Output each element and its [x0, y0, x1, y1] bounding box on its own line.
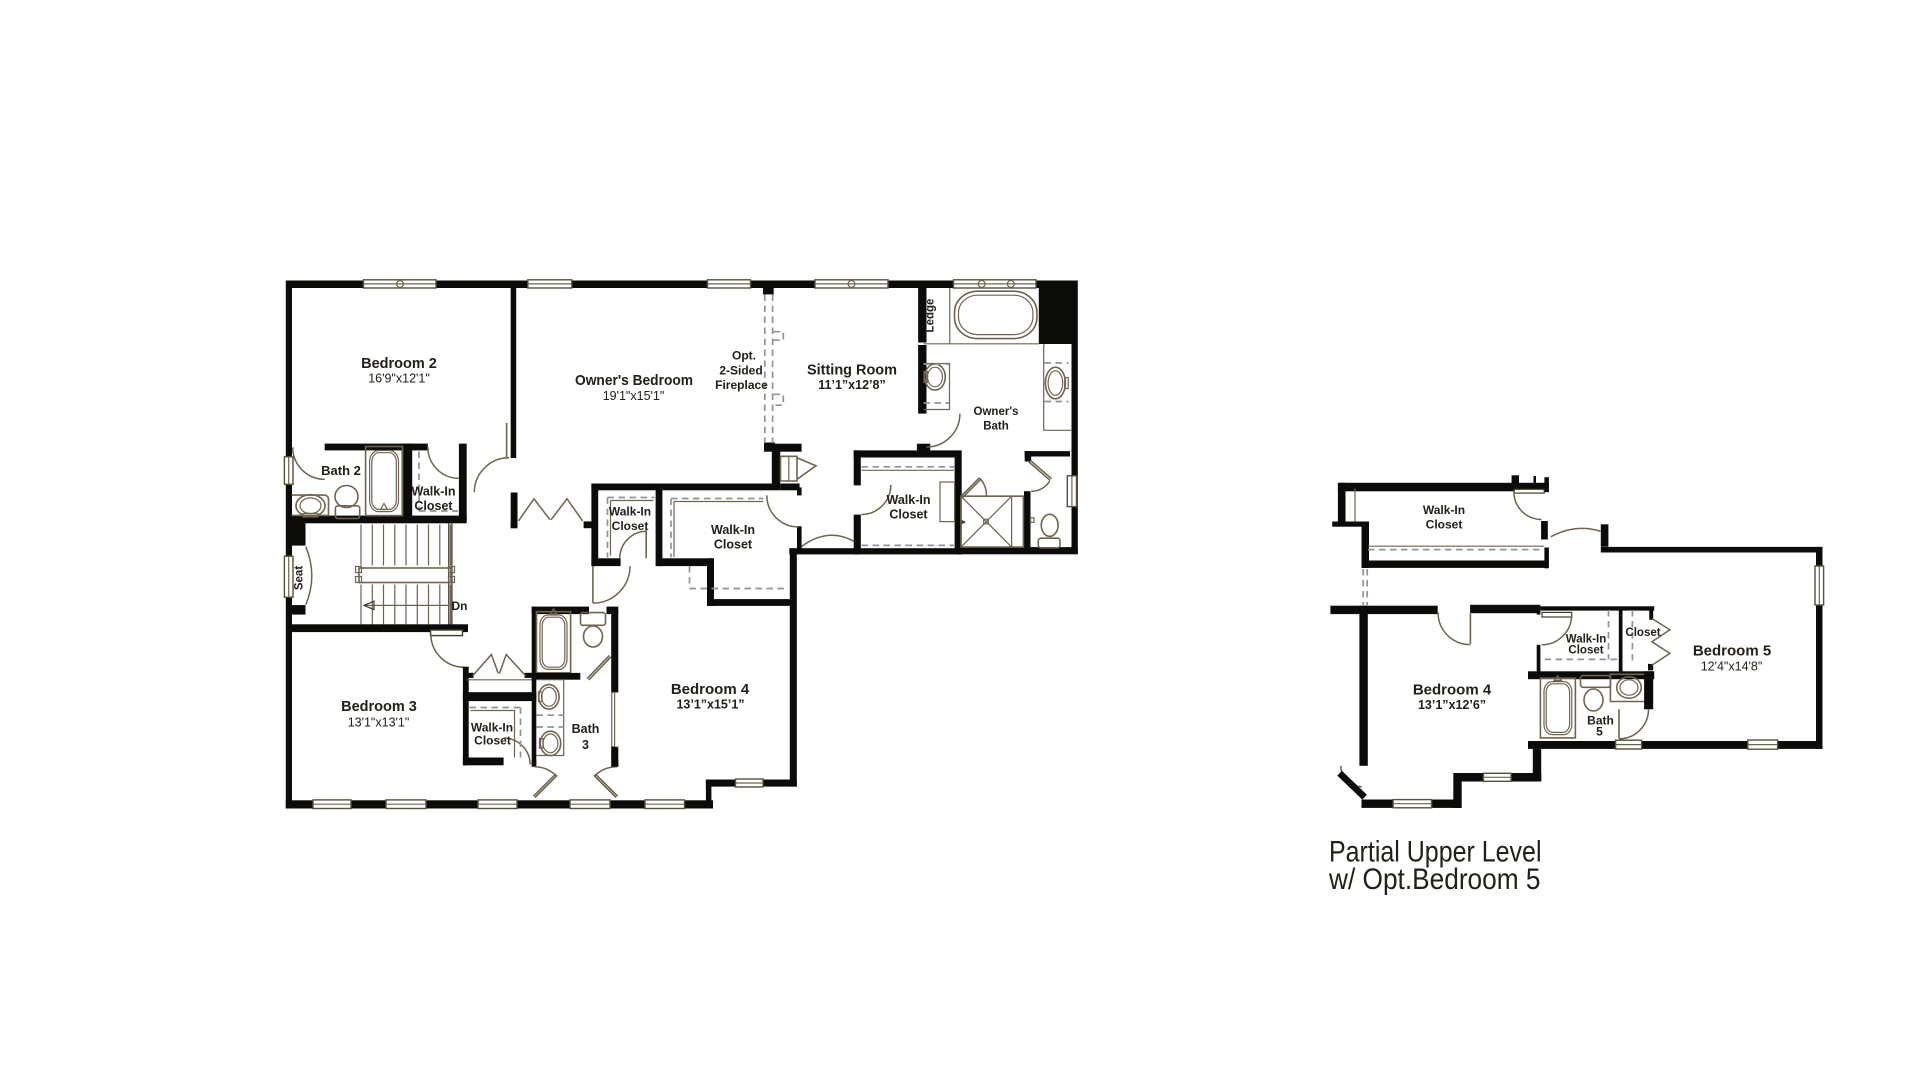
svg-text:Closet: Closet	[1426, 518, 1463, 532]
svg-text:Walk-In: Walk-In	[887, 493, 931, 507]
svg-text:Bedroom 4: Bedroom 4	[1413, 682, 1492, 699]
svg-text:Seat: Seat	[294, 566, 306, 590]
svg-text:Fireplace: Fireplace	[715, 378, 768, 392]
svg-text:Bath 2: Bath 2	[321, 463, 361, 478]
svg-text:19'1"x15'1": 19'1"x15'1"	[603, 389, 665, 403]
svg-text:Owner's: Owner's	[974, 406, 1019, 418]
svg-text:12'4"x14'8": 12'4"x14'8"	[1701, 660, 1763, 674]
svg-text:Closet: Closet	[1625, 627, 1660, 639]
svg-text:Dn: Dn	[452, 599, 468, 613]
svg-text:Closet: Closet	[414, 499, 453, 513]
svg-text:16'9"x12'1": 16'9"x12'1"	[368, 372, 430, 386]
svg-text:5: 5	[1596, 725, 1603, 739]
svg-text:Closet: Closet	[474, 734, 511, 748]
svg-text:13’1”x12’6”: 13’1”x12’6”	[1418, 698, 1486, 712]
svg-text:Walk-In: Walk-In	[711, 523, 755, 537]
svg-text:13’1”x15’1”: 13’1”x15’1”	[676, 698, 744, 712]
svg-text:Closet: Closet	[889, 508, 928, 522]
svg-text:Bath: Bath	[983, 421, 1009, 433]
svg-text:Closet: Closet	[612, 519, 649, 533]
svg-text:Bath: Bath	[572, 722, 600, 736]
svg-text:Walk-In: Walk-In	[412, 485, 456, 499]
svg-text:Opt.: Opt.	[732, 349, 756, 363]
svg-text:w/ Opt.Bedroom 5: w/ Opt.Bedroom 5	[1328, 863, 1540, 896]
svg-text:Walk-In: Walk-In	[471, 721, 513, 735]
svg-text:Bedroom 4: Bedroom 4	[671, 681, 750, 698]
svg-text:Sitting Room: Sitting Room	[807, 362, 897, 379]
svg-text:Walk-In: Walk-In	[1423, 503, 1465, 517]
svg-text:Ledge: Ledge	[925, 299, 937, 333]
svg-text:Owner's Bedroom: Owner's Bedroom	[575, 372, 693, 389]
svg-text:Bedroom 2: Bedroom 2	[361, 356, 437, 372]
svg-text:Bedroom 5: Bedroom 5	[1693, 643, 1771, 660]
svg-text:Closet: Closet	[714, 538, 753, 552]
svg-text:Closet: Closet	[1568, 645, 1603, 657]
svg-text:13'1"x13'1": 13'1"x13'1"	[348, 716, 410, 730]
svg-text:3: 3	[582, 738, 589, 752]
svg-text:2-Sided: 2-Sided	[719, 364, 762, 378]
svg-text:Walk-In: Walk-In	[609, 505, 651, 519]
svg-text:Bedroom 3: Bedroom 3	[341, 699, 417, 715]
svg-text:11’1”x12’8”: 11’1”x12’8”	[818, 378, 885, 392]
